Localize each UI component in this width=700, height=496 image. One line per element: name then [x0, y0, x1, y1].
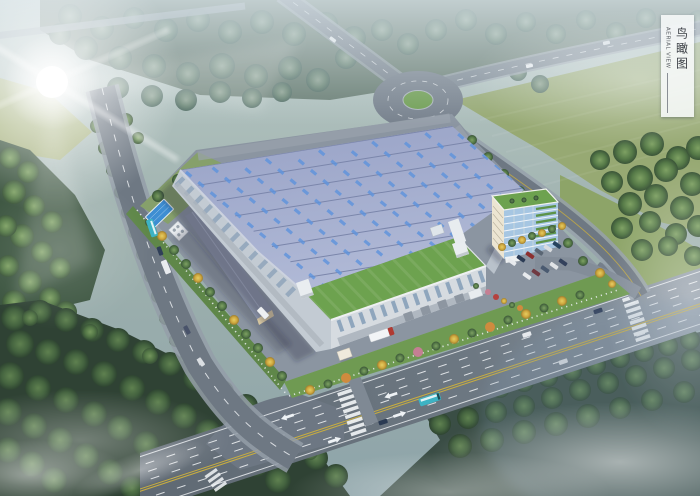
aerial-rendering-stage: AERIAL VIEW 鸟瞰图	[0, 0, 700, 496]
title-english: AERIAL VIEW	[665, 27, 671, 69]
title-chinese: 鸟瞰图	[674, 27, 691, 117]
title-divider-line	[667, 73, 668, 113]
aerial-view-rendering	[0, 0, 700, 496]
title-card-english-column: AERIAL VIEW	[665, 27, 671, 117]
title-card: AERIAL VIEW 鸟瞰图	[661, 15, 694, 117]
